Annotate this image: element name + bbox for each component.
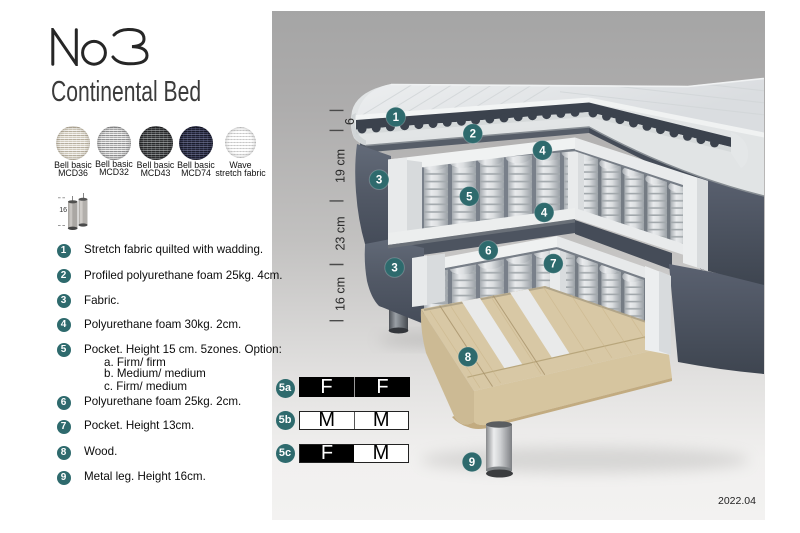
svg-text:3: 3 bbox=[391, 263, 397, 275]
svg-text:4: 4 bbox=[539, 145, 546, 157]
svg-text:1: 1 bbox=[393, 112, 400, 124]
svg-text:4: 4 bbox=[541, 207, 548, 219]
svg-text:16 cm: 16 cm bbox=[334, 277, 348, 311]
svg-text:6: 6 bbox=[343, 118, 357, 125]
svg-text:19 cm: 19 cm bbox=[334, 149, 348, 183]
svg-text:3: 3 bbox=[376, 175, 382, 187]
svg-text:6: 6 bbox=[485, 245, 491, 257]
svg-text:2: 2 bbox=[470, 129, 476, 141]
svg-text:8: 8 bbox=[465, 352, 472, 364]
svg-text:5: 5 bbox=[466, 191, 473, 203]
svg-text:7: 7 bbox=[550, 259, 556, 271]
svg-text:16: 16 bbox=[59, 205, 67, 214]
svg-text:23 cm: 23 cm bbox=[334, 216, 348, 250]
svg-text:9: 9 bbox=[469, 457, 475, 469]
